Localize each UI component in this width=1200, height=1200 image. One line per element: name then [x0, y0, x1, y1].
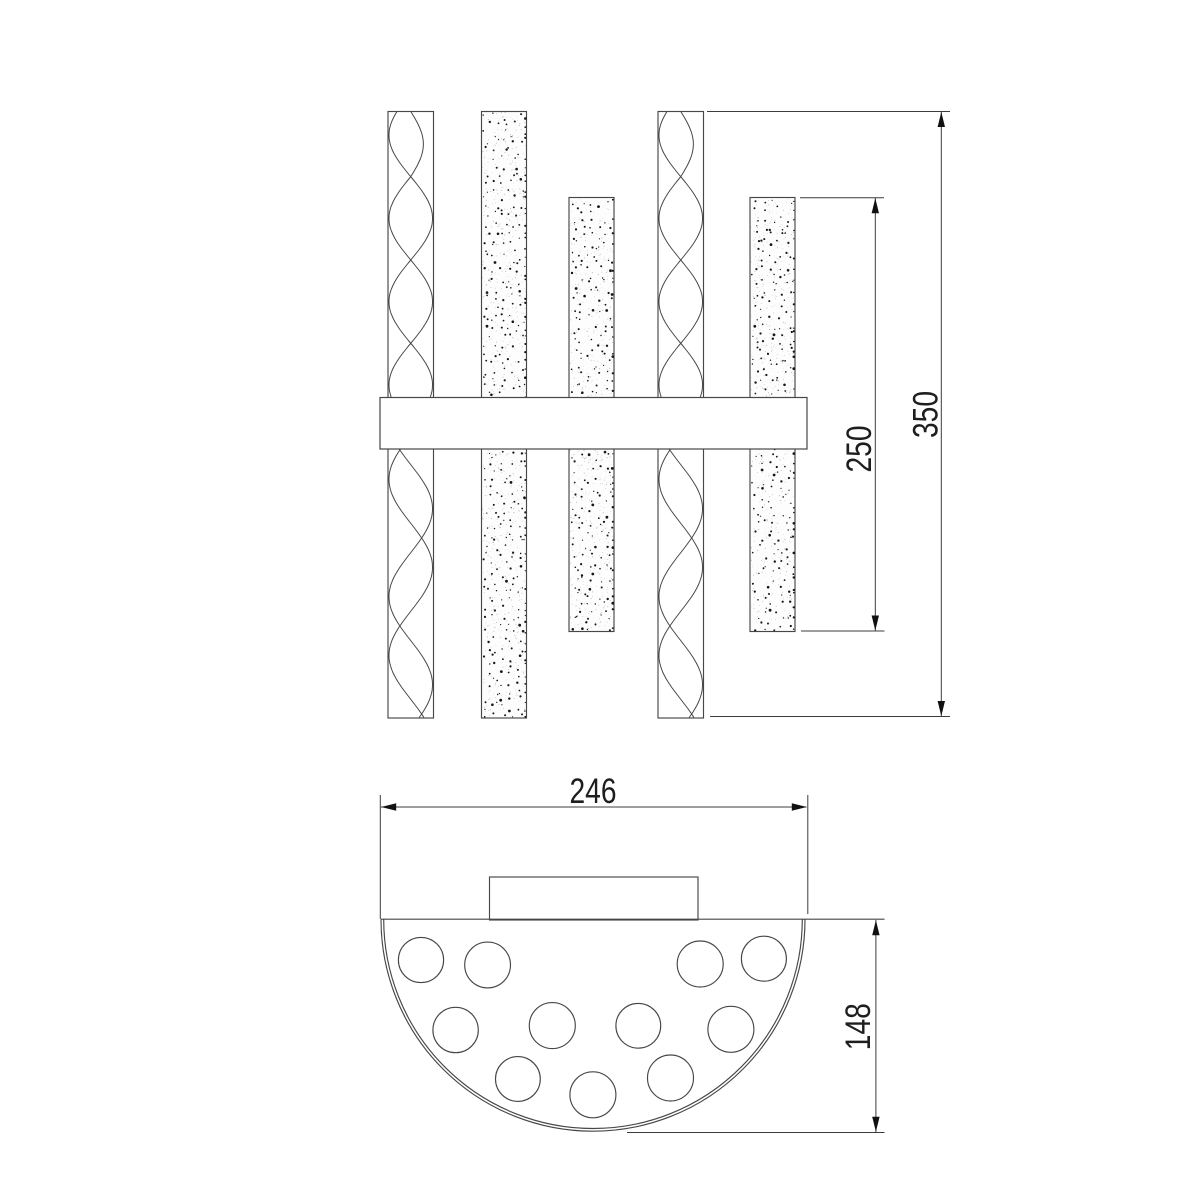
svg-text:250: 250 [840, 426, 879, 473]
svg-text:350: 350 [906, 391, 945, 438]
svg-text:148: 148 [839, 1003, 878, 1050]
svg-text:246: 246 [570, 772, 617, 811]
